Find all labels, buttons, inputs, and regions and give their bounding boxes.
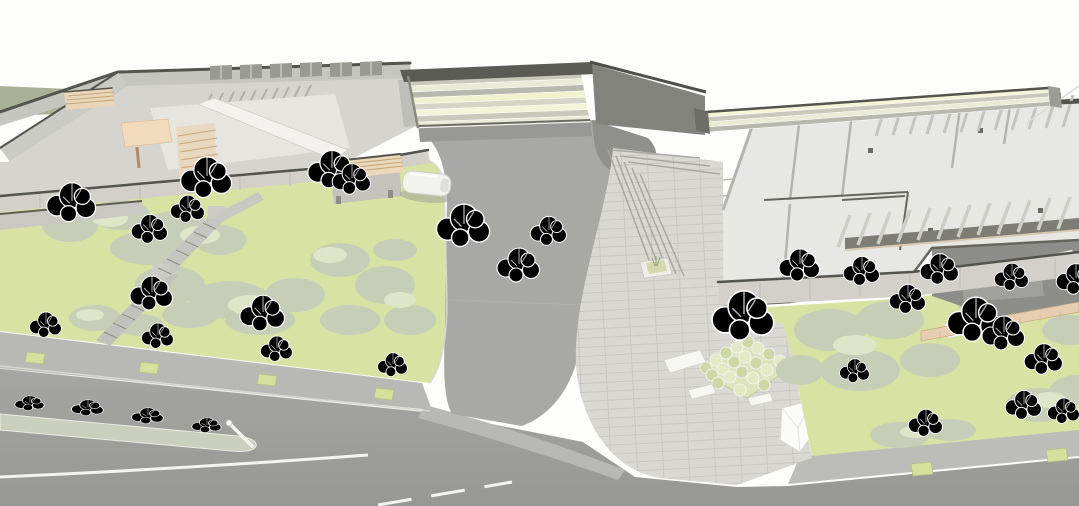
shrub-bump: [734, 384, 746, 396]
shrub-bump: [750, 357, 762, 369]
shrub-bump: [724, 371, 736, 383]
site-render-svg: [0, 0, 1079, 506]
street-tree-pit: [911, 462, 933, 476]
screen-wall-end-left: [694, 108, 710, 134]
shrub-bump: [763, 348, 775, 360]
street-tree-pit: [1046, 448, 1068, 462]
street-tree-pit: [374, 388, 394, 400]
street-tree-pit: [257, 374, 277, 386]
shrub-bump: [758, 379, 770, 391]
shrub-bump: [761, 364, 773, 376]
shrub-bump: [739, 351, 751, 363]
street-tree-pit: [139, 362, 159, 374]
screen-wall-end-right: [1048, 86, 1062, 108]
shrub-bump: [736, 366, 748, 378]
site-render: [0, 0, 1079, 506]
shrub-bump: [747, 372, 759, 384]
shrub-bump: [728, 356, 740, 368]
shrub-bump: [752, 342, 764, 354]
street-tree-pit: [25, 352, 45, 364]
shrub-bump: [731, 341, 743, 353]
